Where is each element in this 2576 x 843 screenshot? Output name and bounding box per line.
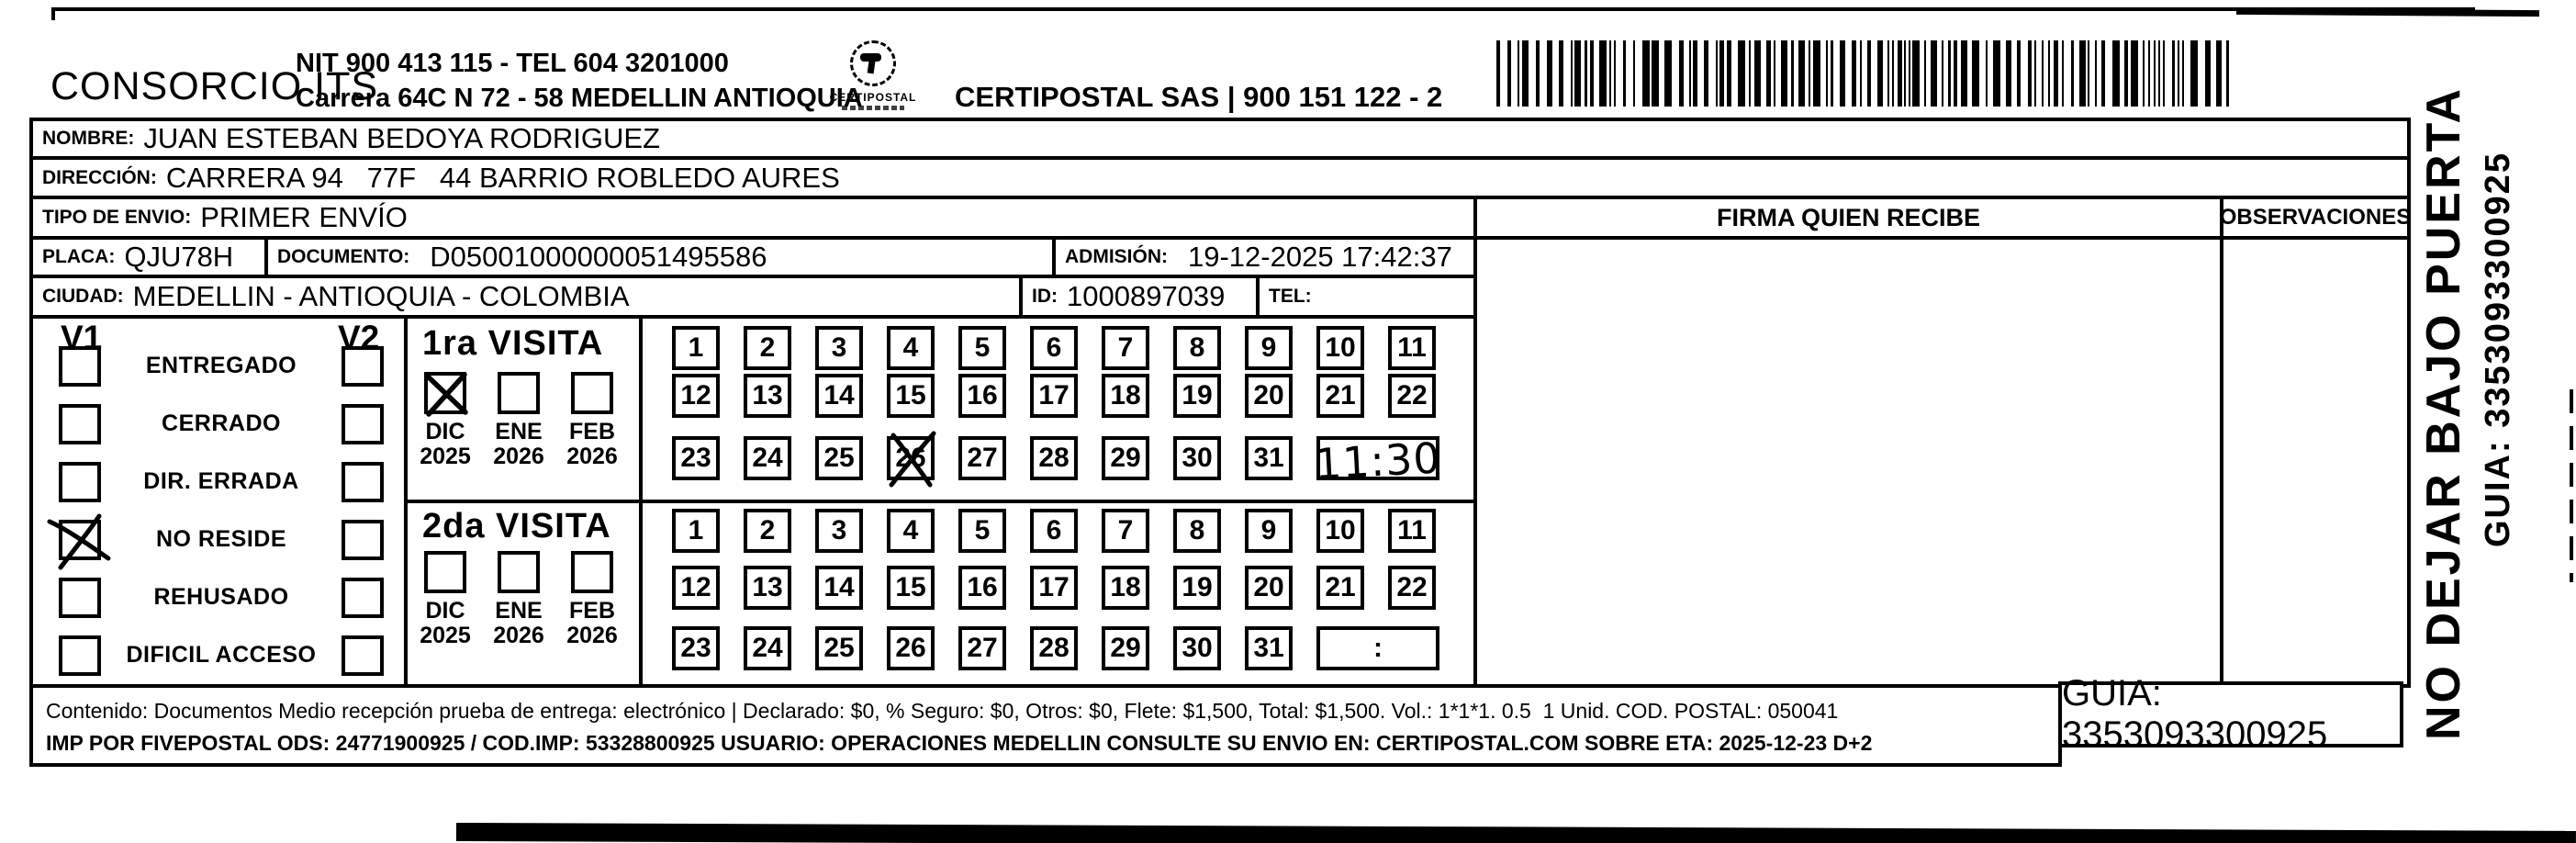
day-25: 25 <box>815 626 863 670</box>
day-number: 16 <box>967 380 997 411</box>
barcode-bar <box>1585 40 1587 107</box>
day-number: 11 <box>1397 332 1427 364</box>
day-3: 3 <box>815 326 863 370</box>
month-name: ENE <box>495 599 542 623</box>
day-28: 28 <box>1030 436 1078 480</box>
barcode-bar <box>1892 40 1894 107</box>
day-14: 14 <box>815 566 863 610</box>
month-year: 2026 <box>493 623 544 648</box>
barcode-bar <box>1518 40 1519 107</box>
barcode-bar <box>1599 40 1607 107</box>
ciudad-value: MEDELLIN - ANTIOQUIA - COLOMBIA <box>133 280 630 313</box>
day-3: 3 <box>815 509 863 553</box>
day-number: 23 <box>680 443 711 474</box>
day-5: 5 <box>958 326 1006 370</box>
day-24: 24 <box>744 626 791 670</box>
provider-line1: CERTIPOSTAL SAS | 900 151 122 - 2 <box>955 79 1557 116</box>
placa-label: PLACA: <box>42 246 115 268</box>
day-number: 21 <box>1325 380 1355 411</box>
day-20: 20 <box>1245 566 1293 610</box>
day-number: 10 <box>1325 515 1355 546</box>
month-year: 2025 <box>420 444 471 469</box>
v1-checkbox <box>59 404 101 444</box>
v2-checkbox <box>342 462 384 502</box>
status-row: NO RESIDE <box>33 511 404 568</box>
day-number: 28 <box>1038 443 1069 474</box>
day-number: 24 <box>752 443 782 474</box>
barcode-bar <box>2088 40 2089 107</box>
barcode-bar <box>2158 40 2160 107</box>
day-19: 19 <box>1173 566 1221 610</box>
logo-caption: CERTIPOSTAL <box>829 91 917 104</box>
v1-checkbox <box>59 635 101 676</box>
day-number: 11 <box>1397 515 1427 546</box>
status-row: DIR. ERRADA <box>33 453 404 511</box>
admision-cell: ADMISIÓN: 19-12-2025 17:42:37 <box>1052 236 1477 278</box>
documento-value: D05001000000051495586 <box>430 241 767 274</box>
day-number: 15 <box>895 380 925 411</box>
day-number: 17 <box>1038 572 1069 603</box>
certipostal-logo: CERTIPOSTAL <box>829 40 917 110</box>
firma-header-cell: FIRMA QUIEN RECIBE <box>1473 196 2223 240</box>
day-number: 14 <box>823 380 854 411</box>
day-24: 24 <box>744 436 791 480</box>
barcode-bar <box>1809 40 1810 107</box>
day-1: 1 <box>672 509 720 553</box>
day-number: 5 <box>975 332 991 364</box>
day-number: 5 <box>975 515 991 546</box>
day-number: 31 <box>1253 443 1283 474</box>
day-15: 15 <box>887 566 935 610</box>
day-22: 22 <box>1388 374 1436 418</box>
barcode-bar <box>1704 40 1708 107</box>
direccion-row: DIRECCIÓN: CARRERA 94 77F 44 BARRIO ROBL… <box>29 156 2411 199</box>
status-label: REHUSADO <box>101 584 342 611</box>
sender-line1: NIT 900 413 115 - TEL 604 3201000 <box>296 49 729 78</box>
day-number: 30 <box>1182 633 1212 664</box>
barcode-bar <box>2131 40 2138 107</box>
barcode-bar <box>2226 40 2229 107</box>
month-year: 2026 <box>566 444 618 469</box>
day-7: 7 <box>1102 326 1149 370</box>
barcode-bar <box>1948 40 1951 107</box>
day-25: 25 <box>815 436 863 480</box>
barcode-bar <box>2017 40 2021 107</box>
day-13: 13 <box>744 566 791 610</box>
footer-imp-line: IMP POR FIVEPOSTAL ODS: 24771900925 / CO… <box>46 727 2045 759</box>
barcode-bar <box>1679 40 1684 107</box>
barcode-bar <box>1559 40 1563 107</box>
status-row: CERRADO <box>33 395 404 453</box>
day-number: 22 <box>1396 380 1427 411</box>
barcode-bar <box>1904 40 1906 107</box>
barcode-bar <box>2071 40 2074 107</box>
time-box: 11:30 <box>1316 436 1439 480</box>
day-number: 25 <box>823 633 854 664</box>
v1-checkbox <box>59 346 101 387</box>
status-panel: V1 V2 ENTREGADOCERRADODIR. ERRADANO RESI… <box>29 315 408 688</box>
day-18: 18 <box>1102 374 1149 418</box>
id-label: ID: <box>1032 286 1058 308</box>
barcode-bar <box>2062 40 2064 107</box>
day-number: 7 <box>1118 332 1134 364</box>
barcode-bar <box>1642 40 1650 107</box>
logo-subcaption <box>842 106 904 110</box>
admision-value: 19-12-2025 17:42:37 <box>1188 241 1452 274</box>
barcode-bar <box>1852 40 1856 107</box>
day-9: 9 <box>1245 509 1293 553</box>
handwritten-time: 11:30 <box>1314 433 1442 489</box>
status-row: REHUSADO <box>33 568 404 626</box>
barcode-bar <box>2182 40 2184 107</box>
barcode-bar <box>1652 40 1659 107</box>
scan-top-line-right <box>2236 8 2539 17</box>
barcode-bar <box>2006 40 2011 107</box>
day-number: 16 <box>967 572 997 603</box>
barcode-bar <box>1909 40 1910 107</box>
barcode-bar <box>1614 40 1616 107</box>
barcode-bar <box>1887 40 1889 107</box>
barcode-bar <box>2079 40 2086 107</box>
barcode-bar <box>1993 40 2000 107</box>
month-checkbox <box>424 551 466 593</box>
day-20: 20 <box>1245 374 1293 418</box>
day-number: 9 <box>1261 515 1277 546</box>
day-16: 16 <box>958 566 1006 610</box>
day-number: 6 <box>1047 515 1062 546</box>
barcode-bar <box>1912 40 1920 107</box>
barcode-bar <box>1766 40 1771 107</box>
calendar-row: 1213141516171819202122 <box>672 374 1436 418</box>
day-number: 29 <box>1110 633 1140 664</box>
handwritten-x-mark <box>48 514 112 571</box>
v2-checkbox <box>342 635 384 676</box>
time-placeholder: : <box>1373 633 1383 664</box>
day-number: 14 <box>823 572 854 603</box>
day-23: 23 <box>672 626 720 670</box>
day-6: 6 <box>1030 509 1078 553</box>
day-30: 30 <box>1173 436 1221 480</box>
barcode-bar <box>1574 40 1581 107</box>
barcode-bar <box>2124 40 2128 107</box>
month-checkbox <box>498 551 540 593</box>
barcode-bar <box>1924 40 1926 107</box>
tipo-envio-label: TIPO DE ENVIO: <box>42 207 191 229</box>
barcode-bar <box>1664 40 1672 107</box>
calendar-row: 1234567891011 <box>672 326 1436 370</box>
status-row: DIFICIL ACCESO <box>33 626 404 684</box>
day-9: 9 <box>1245 326 1293 370</box>
day-29: 29 <box>1102 436 1149 480</box>
day-19: 19 <box>1173 374 1221 418</box>
barcode-bar <box>1954 40 1957 107</box>
month-name: ENE <box>495 420 542 444</box>
day-number: 17 <box>1038 380 1069 411</box>
day-7: 7 <box>1102 509 1149 553</box>
day-number: 30 <box>1182 443 1212 474</box>
documento-cell: DOCUMENTO: D05001000000051495586 <box>264 236 1056 278</box>
day-number: 1 <box>689 332 704 364</box>
month-option-ene: ENE2026 <box>492 551 545 648</box>
barcode-bar <box>1826 40 1828 107</box>
barcode-bar <box>1931 40 1937 107</box>
scan-top-line <box>51 7 2475 11</box>
barcode-bar <box>2048 40 2050 107</box>
day-number: 31 <box>1253 633 1283 664</box>
time-box: : <box>1316 626 1439 670</box>
sender-info: NIT 900 413 115 - TEL 604 3201000Carrera… <box>296 46 863 116</box>
side-guia-text: GUIA: 3353093300925 <box>2479 116 2518 547</box>
day-number: 20 <box>1253 572 1283 603</box>
barcode-bar <box>1942 40 1943 107</box>
placa-value: QJU78H <box>124 241 233 274</box>
barcode-bar <box>1798 40 1805 107</box>
day-5: 5 <box>958 509 1006 553</box>
month-option-dic: DIC2025 <box>419 372 472 469</box>
month-checkbox <box>498 372 540 414</box>
month-name: DIC <box>425 420 465 444</box>
visit-panel-1: 1ra VISITADIC2025ENE2026FEB2026123456789… <box>404 315 1477 503</box>
v2-checkbox <box>342 346 384 387</box>
tipo-envio-cell: TIPO DE ENVIO: PRIMER ENVÍO <box>29 196 1477 240</box>
v1-checkbox <box>59 520 101 560</box>
barcode-bar <box>1860 40 1862 107</box>
status-items: ENTREGADOCERRADODIR. ERRADANO RESIDEREHU… <box>33 337 404 684</box>
day-number: 25 <box>823 443 854 474</box>
id-cell: ID: 1000897039 <box>1019 275 1260 319</box>
day-22: 22 <box>1388 566 1436 610</box>
day-number: 26 <box>895 633 925 664</box>
day-number: 21 <box>1325 572 1355 603</box>
day-number: 23 <box>680 633 711 664</box>
barcode-bar <box>2112 40 2120 107</box>
guia-box: GUIA: 3353093300925 <box>2058 681 2403 747</box>
month-checkbox-row: DIC2025ENE2026FEB2026 <box>419 551 619 648</box>
barcode-bar <box>1590 40 1594 107</box>
barcode-bar <box>2178 40 2179 107</box>
tipo-envio-value: PRIMER ENVÍO <box>200 201 408 234</box>
month-name: DIC <box>425 599 465 623</box>
day-number: 4 <box>903 515 919 546</box>
barcode-bar <box>1813 40 1820 107</box>
barcode-bar <box>1774 40 1775 107</box>
v2-checkbox <box>342 578 384 618</box>
day-6: 6 <box>1030 326 1078 370</box>
barcode-bar <box>1623 40 1626 107</box>
barcode-bar <box>2154 40 2156 107</box>
barcode-bar <box>2101 40 2105 107</box>
day-16: 16 <box>958 374 1006 418</box>
placa-cell: PLACA: QJU78H <box>29 236 268 278</box>
scan-top-tick <box>51 7 55 20</box>
day-11: 11 <box>1388 326 1436 370</box>
barcode-bar <box>1749 40 1751 107</box>
barcode-bar <box>1986 40 1988 107</box>
day-27: 27 <box>958 626 1006 670</box>
barcode-bar <box>2028 40 2032 107</box>
observaciones-header: OBSERVACIONES <box>2220 205 2412 230</box>
barcode-bar <box>1496 40 1500 107</box>
handwritten-x-mark <box>884 432 939 487</box>
barcode-bar <box>1507 40 1511 107</box>
day-number: 28 <box>1038 633 1069 664</box>
day-number: 27 <box>967 633 997 664</box>
barcode-bar <box>2148 40 2150 107</box>
barcode-bar <box>1689 40 1691 107</box>
day-31: 31 <box>1245 626 1293 670</box>
day-number: 29 <box>1110 443 1140 474</box>
month-checkbox <box>571 551 613 593</box>
status-label: ENTREGADO <box>101 353 342 379</box>
month-option-feb: FEB2026 <box>566 551 619 648</box>
admision-label: ADMISIÓN: <box>1065 246 1168 268</box>
barcode-bar <box>2205 40 2211 107</box>
barcode-bar <box>2163 40 2165 107</box>
day-number: 7 <box>1118 515 1134 546</box>
month-option-feb: FEB2026 <box>566 372 619 469</box>
ciudad-cell: CIUDAD: MEDELLIN - ANTIOQUIA - COLOMBIA <box>29 275 1023 319</box>
observaciones-area <box>2220 236 2411 688</box>
day-number: 19 <box>1182 572 1212 603</box>
observaciones-header-cell: OBSERVACIONES <box>2220 196 2411 240</box>
day-28: 28 <box>1030 626 1078 670</box>
day-number: 9 <box>1261 332 1277 364</box>
status-label: DIFICIL ACCESO <box>101 642 342 669</box>
month-name: FEB <box>569 420 615 444</box>
day-23: 23 <box>672 436 720 480</box>
day-number: 4 <box>903 332 919 364</box>
sender-line2: Carrera 64C N 72 - 58 MEDELLIN ANTIOQUIA <box>296 84 863 113</box>
barcode-bar <box>1719 40 1724 107</box>
barcode-bar <box>1536 40 1540 107</box>
nombre-value: JUAN ESTEBAN BEDOYA RODRIGUEZ <box>143 122 660 155</box>
scan-edge-mark <box>2570 389 2573 582</box>
barcode-bar <box>1547 40 1552 107</box>
day-14: 14 <box>815 374 863 418</box>
delivery-slip: CONSORCIO ITS NIT 900 413 115 - TEL 604 … <box>0 0 2576 843</box>
day-number: 2 <box>760 515 776 546</box>
day-number: 18 <box>1110 572 1140 603</box>
footer-content-line: Contenido: Documentos Medio recepción pr… <box>46 695 2045 727</box>
barcode-bar <box>1738 40 1745 107</box>
barcode-bar <box>1727 40 1731 107</box>
day-12: 12 <box>672 566 720 610</box>
day-13: 13 <box>744 374 791 418</box>
day-10: 10 <box>1316 326 1364 370</box>
day-2: 2 <box>744 326 791 370</box>
barcode-bar <box>1877 40 1883 107</box>
day-number: 27 <box>967 443 997 474</box>
month-year: 2026 <box>566 623 618 648</box>
barcode-bar <box>1867 40 1871 107</box>
tel-label: TEL: <box>1269 286 1312 308</box>
status-label: DIR. ERRADA <box>101 468 342 495</box>
v2-checkbox <box>342 404 384 444</box>
barcode-bar <box>1781 40 1787 107</box>
day-number: 22 <box>1396 572 1427 603</box>
day-number: 3 <box>832 515 847 546</box>
visit-divider <box>639 503 643 684</box>
barcode-bar <box>1571 40 1573 107</box>
day-number: 10 <box>1325 332 1355 364</box>
day-21: 21 <box>1316 374 1364 418</box>
day-number: 8 <box>1190 332 1205 364</box>
scan-bottom-band <box>456 823 2576 843</box>
day-26: 26 <box>887 626 935 670</box>
barcode-bar <box>2216 40 2222 107</box>
status-row: ENTREGADO <box>33 337 404 395</box>
day-8: 8 <box>1173 326 1221 370</box>
day-number: 13 <box>752 572 782 603</box>
day-2: 2 <box>744 509 791 553</box>
firma-header: FIRMA QUIEN RECIBE <box>1717 204 1980 232</box>
day-12: 12 <box>672 374 720 418</box>
calendar-row: 1234567891011 <box>672 509 1436 553</box>
visit-divider <box>639 319 643 500</box>
barcode-bar <box>1754 40 1761 107</box>
barcode-bar <box>1791 40 1794 107</box>
barcode-bar <box>1522 40 1529 107</box>
footer-info-cell: Contenido: Documentos Medio recepción pr… <box>29 684 2062 767</box>
firma-area <box>1473 236 2223 688</box>
day-number: 12 <box>680 572 711 603</box>
day-31: 31 <box>1245 436 1293 480</box>
barcode-bar <box>1972 40 1979 107</box>
barcode-bar <box>2054 40 2058 107</box>
month-year: 2025 <box>420 623 471 648</box>
day-number: 15 <box>895 572 925 603</box>
day-10: 10 <box>1316 509 1364 553</box>
day-number: 2 <box>760 332 776 364</box>
barcode-bar <box>1609 40 1611 107</box>
month-option-ene: ENE2026 <box>492 372 545 469</box>
month-name: FEB <box>569 599 615 623</box>
month-checkbox <box>571 372 613 414</box>
barcode-bar <box>1693 40 1697 107</box>
day-4: 4 <box>887 326 935 370</box>
guia-number: GUIA: 3353093300925 <box>2062 673 2400 756</box>
barcode-bar <box>1633 40 1635 107</box>
visit-title: 2da VISITA <box>422 507 611 546</box>
day-15: 15 <box>887 374 935 418</box>
documento-label: DOCUMENTO: <box>277 246 409 268</box>
day-number: 12 <box>680 380 711 411</box>
nombre-label: NOMBRE: <box>42 128 134 150</box>
handwritten-x-mark <box>423 371 471 419</box>
calendar-row: 23242526272829303111:30 <box>672 436 1439 480</box>
calendar-row: 232425262728293031: <box>672 626 1439 670</box>
visit-panel-2: 2da VISITADIC2025ENE2026FEB2026123456789… <box>404 500 1477 688</box>
barcode-bar <box>2190 40 2198 107</box>
barcode-bar <box>1716 40 1718 107</box>
barcode-bar <box>1961 40 1967 107</box>
v2-checkbox <box>342 520 384 560</box>
nombre-row: NOMBRE: JUAN ESTEBAN BEDOYA RODRIGUEZ <box>29 118 2411 160</box>
day-number: 1 <box>689 515 704 546</box>
day-27: 27 <box>958 436 1006 480</box>
barcode-bar <box>2034 40 2036 107</box>
barcode-bar <box>2172 40 2175 107</box>
barcode-bar <box>1831 40 1833 107</box>
day-number: 8 <box>1190 515 1205 546</box>
direccion-label: DIRECCIÓN: <box>42 167 157 189</box>
day-number: 18 <box>1110 380 1140 411</box>
day-26: 26 <box>887 436 935 480</box>
day-1: 1 <box>672 326 720 370</box>
barcode-bar <box>1840 40 1845 107</box>
status-label: NO RESIDE <box>101 526 342 553</box>
month-checkbox <box>424 372 466 414</box>
